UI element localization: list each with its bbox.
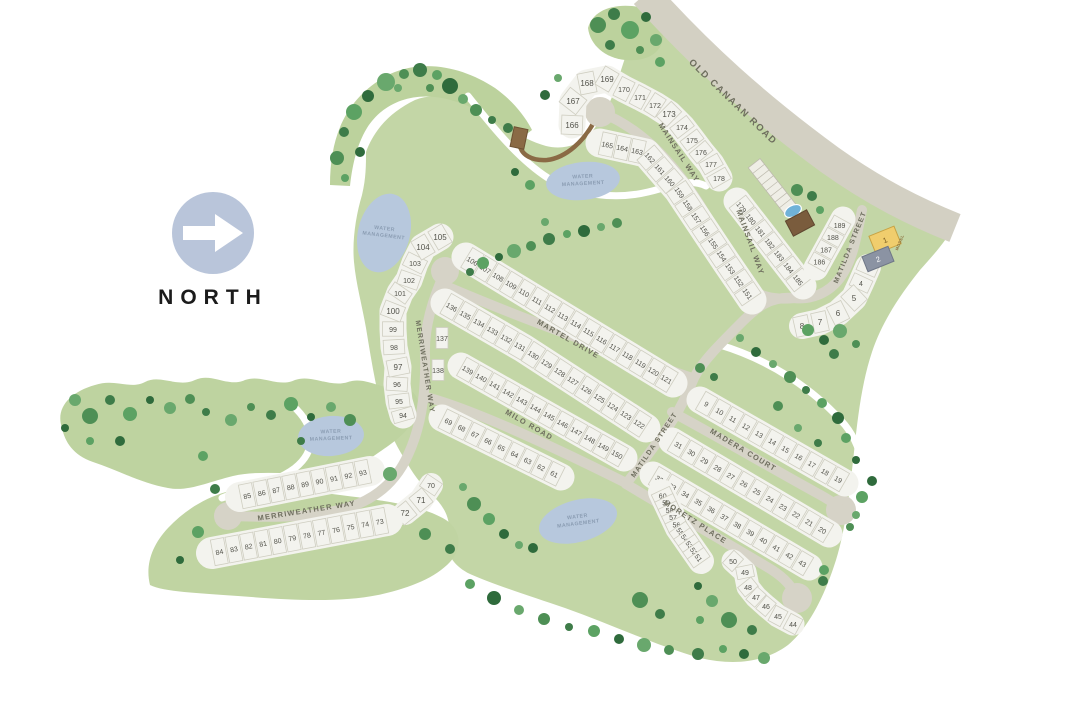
tree: [198, 451, 208, 461]
lot-number: 77: [317, 529, 326, 537]
lot-number: 85: [243, 493, 252, 501]
tree: [507, 244, 521, 258]
lot-number: 94: [399, 413, 407, 420]
tree: [605, 40, 615, 50]
tree: [61, 424, 69, 432]
lot-number: 104: [416, 243, 430, 252]
tree: [608, 8, 620, 20]
tree: [841, 433, 851, 443]
tree: [747, 625, 757, 635]
tree: [346, 104, 362, 120]
tree: [852, 456, 860, 464]
tree: [465, 579, 475, 589]
lot-number: 75: [346, 524, 355, 532]
lot-number: 178: [713, 176, 725, 183]
tree: [515, 541, 523, 549]
tree: [383, 467, 397, 481]
lot-number: 81: [259, 540, 268, 548]
tree: [344, 414, 356, 426]
lot-number: 100: [386, 307, 400, 316]
lot-number: 101: [394, 291, 406, 298]
svg-text:WATER: WATER: [320, 429, 341, 436]
tree: [526, 241, 536, 251]
tree: [413, 63, 427, 77]
lot-number: 170: [618, 87, 630, 94]
tree: [769, 360, 777, 368]
tree: [185, 394, 195, 404]
tree: [818, 576, 828, 586]
tree: [202, 408, 210, 416]
lot-number: 5: [852, 294, 857, 303]
lot-number: 95: [395, 399, 403, 406]
lot-number: 49: [741, 570, 749, 577]
tree: [565, 623, 573, 631]
tree: [284, 397, 298, 411]
tree: [419, 528, 431, 540]
tree: [588, 625, 600, 637]
tree: [341, 174, 349, 182]
tree: [856, 491, 868, 503]
tree: [736, 334, 744, 342]
tree: [192, 526, 204, 538]
lot-number: 86: [257, 490, 266, 498]
lot-number: 79: [288, 535, 297, 543]
tree: [590, 17, 606, 33]
tree: [832, 412, 844, 424]
tree: [499, 529, 509, 539]
lot-number: 76: [332, 527, 341, 535]
lot-98[interactable]: 98: [383, 339, 405, 355]
lot-number: 7: [818, 318, 823, 327]
lot-number: 78: [303, 532, 312, 540]
tree: [525, 180, 535, 190]
tree: [247, 403, 255, 411]
lot-number: 105: [433, 233, 447, 242]
tree: [495, 253, 503, 261]
tree: [543, 233, 555, 245]
tree: [706, 595, 718, 607]
tree: [694, 582, 702, 590]
tree: [377, 73, 395, 91]
tree: [807, 191, 817, 201]
lot-number: 82: [244, 543, 253, 551]
lot-number: 98: [390, 345, 398, 352]
tree: [123, 407, 137, 421]
tree: [802, 324, 814, 336]
tree: [597, 223, 605, 231]
lot-97[interactable]: 97: [386, 357, 410, 377]
tree: [829, 349, 839, 359]
lot-number: 169: [600, 75, 614, 84]
lot-number: 173: [662, 110, 676, 119]
lot-number: 90: [315, 478, 324, 486]
tree: [297, 437, 305, 445]
tree: [426, 84, 434, 92]
lot-number: 189: [834, 223, 846, 230]
lot-number: 172: [649, 103, 661, 110]
tree: [846, 523, 854, 531]
tree: [487, 591, 501, 605]
tree: [445, 544, 455, 554]
tree: [176, 556, 184, 564]
tree: [867, 476, 877, 486]
lot-number: 188: [827, 235, 839, 242]
tree: [503, 123, 513, 133]
tree: [802, 386, 810, 394]
lot-number: 174: [676, 125, 688, 132]
tree: [650, 34, 662, 46]
lot-166[interactable]: 166: [561, 115, 583, 135]
tree: [210, 484, 220, 494]
tree: [816, 206, 824, 214]
lot-138[interactable]: 138: [432, 360, 444, 381]
tree: [655, 57, 665, 67]
lot-number: 177: [705, 162, 717, 169]
lot-number: 73: [375, 518, 384, 526]
lot-number: 48: [744, 585, 752, 592]
tree: [621, 21, 639, 39]
lot-number: 74: [361, 521, 370, 529]
tree: [655, 609, 665, 619]
tree: [751, 347, 761, 357]
tree: [466, 268, 474, 276]
tree: [164, 402, 176, 414]
lot-168[interactable]: 168: [577, 71, 597, 95]
tree: [511, 168, 519, 176]
tree: [86, 437, 94, 445]
tree: [399, 69, 409, 79]
tree: [664, 645, 674, 655]
tree: [483, 513, 495, 525]
lot-number: 88: [286, 484, 295, 492]
tree: [470, 104, 482, 116]
site-plan-page: 1661671681691701711721731741751761771781…: [0, 0, 1085, 724]
lot-number: 96: [393, 382, 401, 389]
tree: [817, 398, 827, 408]
tree: [394, 84, 402, 92]
tree: [819, 335, 829, 345]
tree: [326, 402, 336, 412]
tree: [739, 649, 749, 659]
lot-96[interactable]: 96: [386, 377, 408, 392]
lot-number: 89: [301, 481, 310, 489]
site-plan-map: 1661671681691701711721731741751761771781…: [0, 0, 1085, 724]
lot-137[interactable]: 137: [436, 328, 448, 349]
lot-number: 187: [820, 247, 832, 254]
lot-number: 175: [686, 138, 698, 145]
tree: [819, 565, 829, 575]
lot-number: 102: [403, 278, 415, 285]
tree: [632, 592, 648, 608]
tree: [225, 414, 237, 426]
tree: [459, 483, 467, 491]
tree: [307, 413, 315, 421]
tree: [852, 340, 860, 348]
lot-number: 80: [273, 538, 282, 546]
lot-99[interactable]: 99: [383, 322, 404, 336]
lot-number: 171: [634, 95, 646, 102]
lot-number: 70: [427, 483, 435, 490]
tree: [758, 652, 770, 664]
svg-text:WATER: WATER: [572, 173, 593, 180]
tree: [612, 218, 622, 228]
lot-number: 186: [814, 260, 826, 267]
lot-number: 97: [394, 363, 403, 372]
tree: [69, 394, 81, 406]
tree: [105, 395, 115, 405]
lot-number: 6: [836, 309, 841, 318]
tree: [692, 648, 704, 660]
lot-number: 92: [344, 472, 353, 480]
lot-number: 71: [417, 496, 426, 505]
lot-number: 87: [272, 487, 281, 495]
tree: [540, 90, 550, 100]
tree: [773, 401, 783, 411]
lot-number: 83: [230, 546, 239, 554]
tree: [814, 439, 822, 447]
tree: [355, 147, 365, 157]
tree: [641, 12, 651, 22]
lot-number: 103: [409, 261, 421, 268]
tree: [710, 373, 718, 381]
lot-number: 47: [752, 595, 760, 602]
tree: [721, 612, 737, 628]
tree: [442, 78, 458, 94]
tree: [432, 70, 442, 80]
lot-number: 45: [774, 614, 782, 621]
tree: [514, 605, 524, 615]
lot-number: 93: [359, 469, 368, 477]
lot-number: 137: [436, 336, 448, 343]
lot-number: 166: [565, 121, 579, 130]
lot-number: 91: [330, 475, 339, 483]
tree: [833, 324, 847, 338]
lot-number: 167: [566, 97, 580, 106]
lot-number: 46: [762, 604, 770, 611]
tree: [791, 184, 803, 196]
tree: [784, 371, 796, 383]
tree: [563, 230, 571, 238]
tree: [719, 645, 727, 653]
tree: [488, 116, 496, 124]
tree: [538, 613, 550, 625]
tree: [578, 225, 590, 237]
tree: [458, 94, 468, 104]
lot-number: 99: [389, 327, 397, 334]
lot-number: 176: [695, 150, 707, 157]
tree: [695, 363, 705, 373]
tree: [362, 90, 374, 102]
lot-number: 4: [859, 281, 863, 288]
lot-number: 168: [580, 79, 594, 88]
lot-95[interactable]: 95: [388, 393, 410, 409]
tree: [146, 396, 154, 404]
tree: [477, 257, 489, 269]
tree: [636, 46, 644, 54]
lot-number: 138: [432, 368, 444, 375]
tree: [115, 436, 125, 446]
lot-number: 50: [729, 559, 737, 566]
tree: [528, 543, 538, 553]
tree: [554, 74, 562, 82]
tree: [852, 511, 860, 519]
tree: [266, 410, 276, 420]
tree: [794, 424, 802, 432]
lot-number: 84: [215, 549, 224, 557]
tree: [82, 408, 98, 424]
tree: [330, 151, 344, 165]
lot-number: 44: [789, 622, 797, 629]
tree: [467, 497, 481, 511]
tree: [637, 638, 651, 652]
tree: [339, 127, 349, 137]
tree: [614, 634, 624, 644]
tree: [696, 616, 704, 624]
north-label: NORTH: [152, 286, 274, 310]
tree: [541, 218, 549, 226]
